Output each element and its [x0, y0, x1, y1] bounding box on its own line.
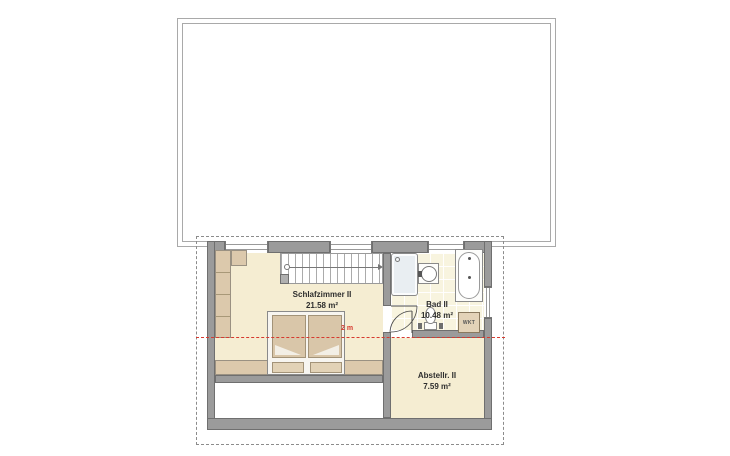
door-swings	[0, 0, 730, 456]
room-abstellraum-label: Abstellr. II 7.59 m²	[387, 371, 487, 393]
floor-plan-canvas: WKT 2 m Schlafzimmer II 21.58 m² Bad II …	[0, 0, 730, 456]
room-name: Abstellr. II	[387, 371, 487, 382]
room-name: Bad II	[397, 300, 477, 311]
room-name: Schlafzimmer II	[252, 290, 392, 301]
room-bad-label: Bad II 10.48 m²	[397, 300, 477, 322]
headroom-2m-line	[196, 337, 505, 338]
room-area: 10.48 m²	[397, 311, 477, 322]
headroom-2m-label: 2 m	[341, 325, 353, 332]
room-area: 7.59 m²	[387, 382, 487, 393]
room-schlafzimmer-label: Schlafzimmer II 21.58 m²	[252, 290, 392, 312]
room-area: 21.58 m²	[252, 301, 392, 312]
